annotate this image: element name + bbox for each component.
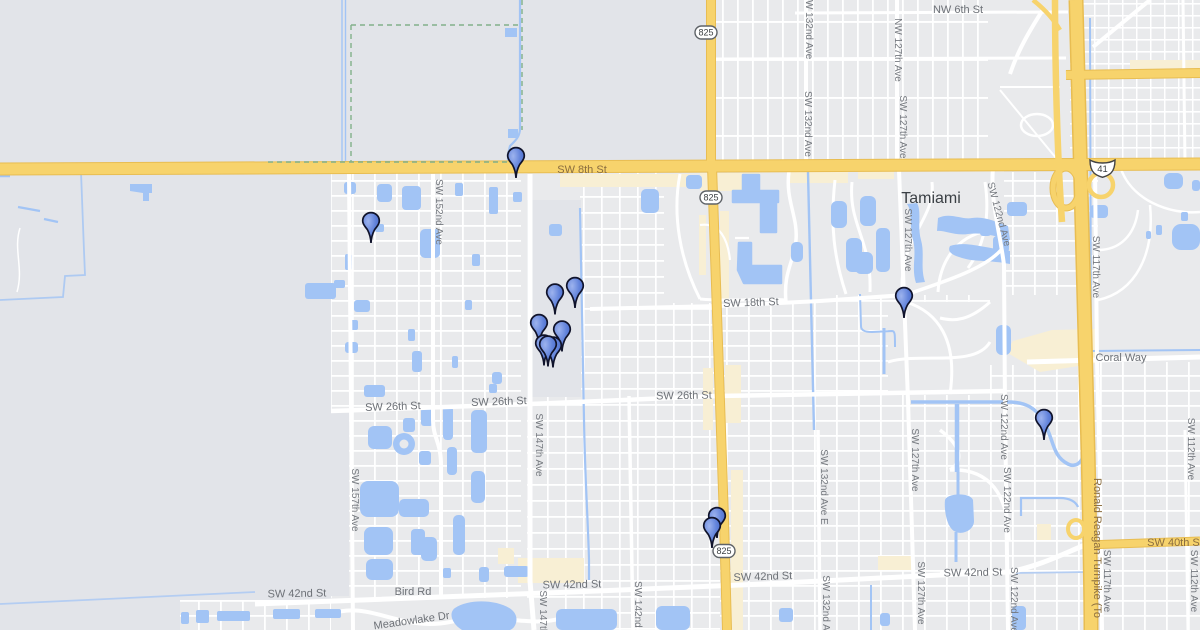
svg-text:825: 825 [716,546,731,556]
svg-text:SW 8th St: SW 8th St [557,164,607,176]
svg-text:SW 42nd St: SW 42nd St [943,566,1002,579]
svg-text:Tamiami: Tamiami [901,190,961,207]
svg-text:SW 132nd A: SW 132nd A [820,575,831,630]
svg-text:SW 42nd St: SW 42nd St [733,570,792,584]
svg-text:SW 127th Ave: SW 127th Ave [909,428,920,492]
svg-text:SW 157th Ave: SW 157th Ave [349,468,360,532]
svg-text:SW 40th St: SW 40th St [1147,537,1200,549]
svg-text:SW 122nd Ave: SW 122nd Ave [998,394,1009,460]
svg-text:SW 147th Ave: SW 147th Ave [533,413,544,477]
svg-text:SW 152nd Ave: SW 152nd Ave [433,179,444,245]
svg-text:SW 147th Ave: SW 147th Ave [537,590,548,630]
svg-text:SW 26th St: SW 26th St [656,390,712,403]
svg-text:SW 26th St: SW 26th St [471,395,527,409]
svg-text:SW 142nd Ave: SW 142nd Ave [632,581,643,630]
svg-text:SW 42nd St: SW 42nd St [267,587,326,600]
svg-text:SW 122nd Ave: SW 122nd Ave [1008,567,1019,630]
svg-text:SW 117th Ave: SW 117th Ave [1090,236,1101,299]
svg-text:825: 825 [698,28,713,38]
svg-text:Coral Way: Coral Way [1096,352,1147,364]
svg-text:NW 127th Ave: NW 127th Ave [892,18,903,82]
svg-text:SW 112th Ave: SW 112th Ave [1188,550,1199,613]
svg-text:825: 825 [703,193,718,203]
svg-text:SW 132nd Ave: SW 132nd Ave [802,91,813,157]
svg-text:SW 127th Ave: SW 127th Ave [902,208,913,272]
svg-text:SW 127th Ave: SW 127th Ave [897,95,908,159]
svg-text:SW 132nd Ave E: SW 132nd Ave E [818,449,829,525]
svg-text:SW 42nd St: SW 42nd St [542,578,601,591]
svg-text:SW 18th St: SW 18th St [723,296,779,310]
svg-text:NW 6th St: NW 6th St [933,4,983,16]
svg-text:SW 26th St: SW 26th St [365,400,421,414]
svg-text:SW 117th Ave: SW 117th Ave [1101,550,1112,613]
svg-text:NW 132nd Ave: NW 132nd Ave [803,0,814,60]
svg-text:41: 41 [1097,164,1108,175]
svg-text:SW 112th Ave: SW 112th Ave [1185,418,1196,481]
svg-text:Bird Rd: Bird Rd [395,586,432,598]
svg-text:SW 122nd Ave: SW 122nd Ave [1001,467,1012,533]
svg-text:SW 127th Ave: SW 127th Ave [915,561,926,625]
